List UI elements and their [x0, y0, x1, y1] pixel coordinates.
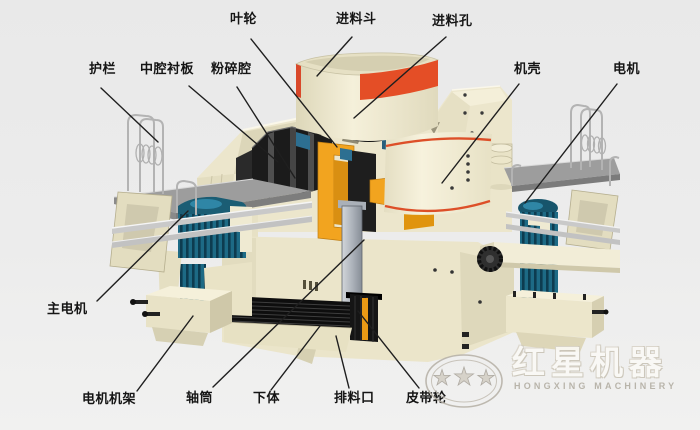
diagram-stage: 叶轮 进料斗 进料孔 护栏 中腔衬板 粉碎腔 机壳 电机 主电机 电机机架 轴筒… [0, 0, 700, 430]
label-feed-hopper: 进料斗 [336, 12, 377, 26]
leader-guardrail [101, 88, 158, 142]
label-motor: 电机 [613, 62, 640, 76]
label-lower-body: 下体 [253, 391, 280, 405]
label-shaft-cylinder: 轴筒 [186, 391, 213, 405]
label-belt-pulley: 皮带轮 [406, 391, 447, 405]
support-cylinder [490, 144, 512, 190]
flange-disc [477, 246, 503, 272]
main-casing-drum [384, 132, 492, 215]
motor-frame [130, 286, 232, 346]
label-impeller: 叶轮 [230, 12, 257, 26]
label-cavity-liner: 中腔衬板 [140, 62, 194, 76]
feed-hopper [296, 53, 438, 141]
label-crushing-chamber: 粉碎腔 [211, 62, 252, 76]
label-casing: 机壳 [514, 62, 541, 76]
right-motor-mount [506, 290, 609, 352]
label-motor-frame: 电机机架 [82, 392, 136, 406]
label-main-motor: 主电机 [47, 302, 88, 316]
label-guardrail: 护栏 [89, 62, 116, 76]
label-discharge-port: 排料口 [334, 391, 375, 405]
label-feed-hole: 进料孔 [432, 14, 473, 28]
